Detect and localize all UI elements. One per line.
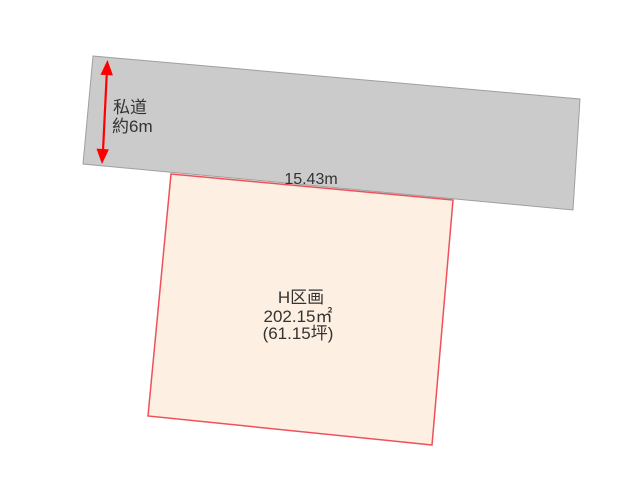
land-plot-diagram: 私道 約6m 15.43m H区画 202.15㎡ (61.15坪) [0, 0, 640, 480]
parcel-area-tsubo-label: (61.15坪) [263, 324, 334, 343]
parcel-name-label: H区画 [278, 288, 324, 307]
road-label: 私道 [113, 98, 147, 117]
road-width-label: 約6m [112, 117, 153, 136]
plot-canvas: 私道 約6m 15.43m H区画 202.15㎡ (61.15坪) [0, 0, 640, 480]
frontage-measurement-label: 15.43m [284, 171, 337, 188]
